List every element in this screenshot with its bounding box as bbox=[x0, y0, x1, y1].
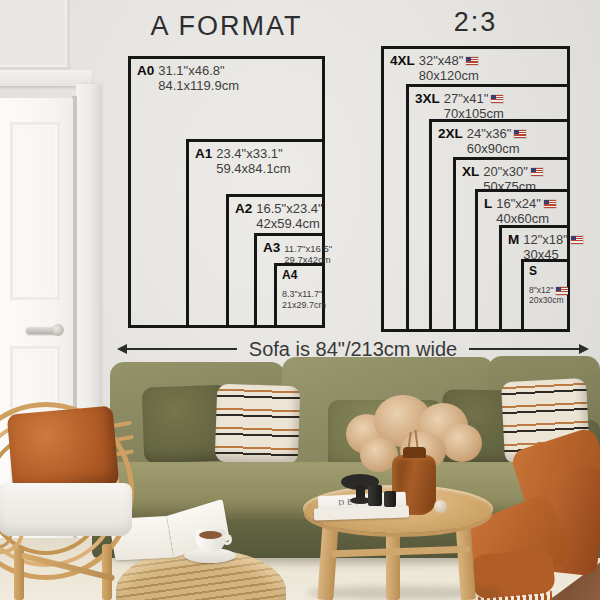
size-cm: 20x30cm bbox=[529, 296, 568, 306]
ratio-title: 2:3 bbox=[381, 7, 570, 38]
size-cm: 40x60cm bbox=[496, 212, 556, 227]
size-inches: 16"x24" bbox=[496, 197, 541, 212]
size-cm: 21x29.7cm bbox=[282, 300, 326, 310]
living-room-size-guide: A FORMAT 2:3 A0 31.1"x46.8" 84.1x119.9cm… bbox=[0, 0, 600, 600]
size-label: S bbox=[529, 265, 565, 278]
size-inches: 32"x48" bbox=[419, 54, 464, 69]
candle-holder bbox=[368, 485, 382, 506]
rattan-armchair bbox=[0, 396, 152, 600]
size-label: 4XL bbox=[390, 53, 415, 68]
a-format-title: A FORMAT bbox=[128, 11, 325, 42]
us-flag-icon bbox=[514, 130, 526, 138]
size-label: L bbox=[484, 196, 492, 211]
door-panel-upper bbox=[10, 122, 60, 300]
size-inches: 27"x41" bbox=[444, 92, 489, 107]
coffee bbox=[199, 531, 222, 539]
size-box-a4: A4 8.3"x11.7" 21x29.7cm bbox=[274, 263, 325, 328]
throw-pillow-striped bbox=[215, 384, 301, 465]
candle-holder bbox=[384, 491, 396, 507]
size-label: 2XL bbox=[438, 126, 463, 141]
size-cm: 60x90cm bbox=[467, 142, 527, 157]
chair-seat-cushion bbox=[0, 483, 132, 536]
table-leg bbox=[386, 528, 400, 600]
us-flag-icon bbox=[491, 95, 503, 103]
size-cm: 80x120cm bbox=[419, 69, 479, 84]
size-label: M bbox=[508, 232, 519, 247]
size-inches: 8.3"x11.7" bbox=[282, 289, 326, 299]
size-cm: 59.4x84.1cm bbox=[216, 162, 290, 177]
cup-handle bbox=[222, 534, 232, 545]
wood-ball bbox=[434, 500, 447, 513]
us-flag-icon bbox=[556, 287, 568, 295]
us-flag-icon bbox=[571, 236, 583, 244]
us-flag-icon bbox=[466, 57, 478, 65]
dried-flowers bbox=[442, 424, 482, 462]
size-box-s: S 8"x12" 20x30cm bbox=[521, 259, 570, 332]
rust-pillow bbox=[7, 406, 120, 495]
size-inches: 23.4"x33.1" bbox=[216, 147, 290, 162]
size-label: A4 bbox=[282, 269, 320, 282]
us-flag-icon bbox=[544, 200, 556, 208]
door-handle-rosette bbox=[52, 324, 64, 336]
size-label: A3 bbox=[263, 240, 280, 255]
size-inches: 16.5"x23.4" bbox=[256, 202, 322, 217]
size-inches: 31.1"x46.8" bbox=[158, 64, 239, 79]
us-flag-icon bbox=[531, 168, 543, 176]
size-cm: 42x59.4cm bbox=[256, 217, 322, 232]
size-cm: 84.1x119.9cm bbox=[158, 79, 239, 94]
size-label: 3XL bbox=[415, 91, 440, 106]
size-label: A2 bbox=[235, 201, 252, 216]
size-label: A0 bbox=[137, 63, 154, 78]
amber-vase-neck bbox=[403, 447, 426, 458]
size-inches: 24"x36" bbox=[467, 127, 512, 142]
size-inches: 12"x18" bbox=[523, 233, 568, 248]
size-inches: 20"x30" bbox=[483, 165, 528, 180]
size-label: XL bbox=[462, 164, 479, 179]
size-label: A1 bbox=[195, 146, 212, 161]
wall-molding-panel bbox=[0, 0, 70, 70]
arrow-left-icon bbox=[112, 344, 127, 354]
arrow-right-icon bbox=[579, 344, 594, 354]
